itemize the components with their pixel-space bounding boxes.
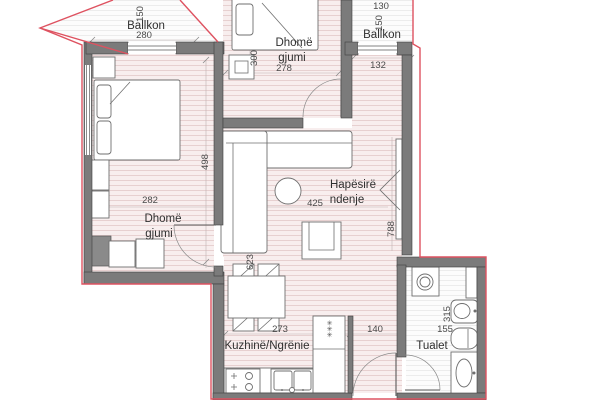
fridge-icon: ✳✳✳: [325, 320, 333, 338]
bathroom-sink-bowl: [454, 304, 470, 319]
stove: [226, 369, 260, 393]
faucet-dot: [473, 372, 476, 375]
pillow: [97, 85, 111, 118]
wall-segment: [223, 118, 303, 128]
pillow: [97, 121, 111, 154]
dim-living-height: 788: [386, 221, 397, 237]
sink-basin: [294, 371, 311, 390]
faucet-dot: [281, 389, 283, 391]
burner: [246, 384, 253, 391]
dim-kitchen-width: 273: [272, 324, 288, 335]
burner: [246, 373, 253, 380]
wc-toilet: [451, 328, 478, 349]
dining-table: [228, 276, 285, 318]
label-bedroom-left-2: gjumi: [145, 228, 172, 240]
wall-segment: [397, 257, 486, 267]
window: [358, 43, 397, 53]
faucet: [290, 388, 295, 393]
label-toilet: Tualet: [416, 340, 448, 352]
dim-bedroom-top-width: 278: [276, 63, 292, 74]
dim-hall-width: 140: [367, 324, 383, 335]
wall-segment: [345, 42, 358, 55]
dim-toilet-height: 315: [442, 306, 453, 322]
window: [85, 65, 91, 155]
wall-segment: [397, 265, 406, 357]
label-bedroom-left-1: Dhomë: [144, 213, 181, 225]
window: [128, 43, 176, 53]
wall-segment: [477, 267, 486, 393]
sofa-corner: [221, 131, 267, 253]
dim-bedroom-left-width: 282: [142, 195, 158, 206]
label-bedroom-top-1: Dhomë: [275, 37, 312, 49]
sink-basin: [274, 371, 292, 390]
coffee-table: [275, 178, 301, 204]
dim-entry-width: 132: [370, 60, 386, 71]
dresser: [136, 239, 164, 268]
dim-bedroom-top-height: 300: [249, 50, 260, 66]
dim-balcony-right-width: 130: [373, 1, 389, 12]
wall-segment: [213, 284, 224, 400]
bathroom-shelf: [466, 267, 477, 298]
dim-living-width: 425: [307, 198, 323, 209]
wall-segment: [402, 55, 412, 255]
wall-segment: [84, 272, 224, 284]
wall-segment: [341, 0, 352, 118]
pillow: [236, 4, 253, 35]
wall-segment: [397, 42, 412, 55]
dim-bedroom-left-height: 498: [200, 154, 211, 170]
dresser: [109, 241, 135, 267]
label-kitchen: Kuzhinë/Ngrënie: [224, 340, 309, 352]
nightstand: [93, 57, 115, 78]
label-living-1: Hapësirë: [330, 179, 376, 191]
washing-machine-drum-inner: [420, 277, 430, 287]
dim-kitchen-height: 623: [245, 254, 256, 270]
faucet-dot: [302, 389, 304, 391]
shower-tray: [456, 359, 472, 387]
armchair: [302, 222, 341, 259]
wall-segment: [348, 316, 353, 393]
floor-plan-svg: 150 Ballkon 280 Dhomë gjumi 278 300 130 …: [0, 0, 600, 400]
wall-segment: [214, 42, 223, 225]
dim-balcony-left-width: 280: [136, 30, 152, 41]
wall-segment: [214, 266, 223, 276]
dim-toilet-width: 155: [437, 324, 453, 335]
label-living-2: ndenje: [330, 194, 365, 206]
faucet-dot: [474, 310, 477, 313]
label-balcony-right: Ballkon: [363, 29, 401, 41]
floor-plan-canvas: 150 Ballkon 280 Dhomë gjumi 278 300 130 …: [0, 0, 600, 400]
